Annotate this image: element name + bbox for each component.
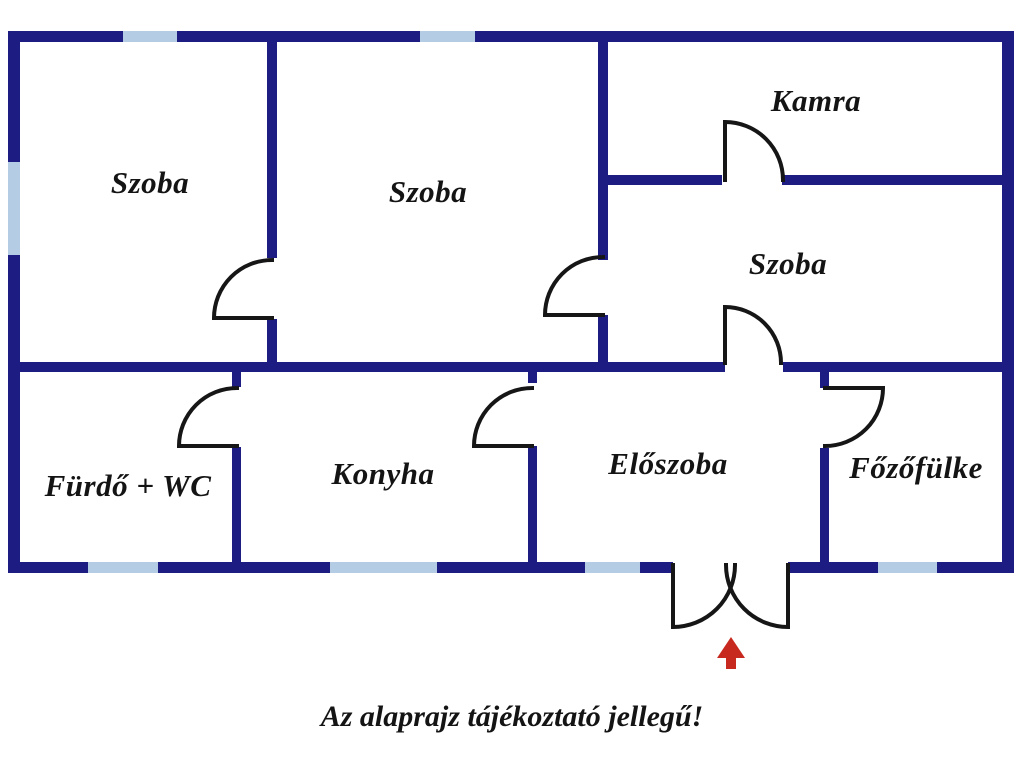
window-bottom-eloszoba bbox=[585, 562, 640, 573]
window-bottom-fozofulke bbox=[878, 562, 937, 573]
room-label-kamra: Kamra bbox=[771, 83, 861, 119]
door-kamra bbox=[725, 122, 783, 180]
room-label-eloszoba: Előszoba bbox=[608, 446, 727, 482]
room-label-szoba-3: Szoba bbox=[749, 246, 827, 282]
window-top-szoba2 bbox=[420, 31, 475, 42]
door-szoba3 bbox=[725, 307, 781, 363]
window-left-szoba1 bbox=[8, 162, 20, 255]
entrance-arrow-icon bbox=[717, 637, 745, 669]
room-label-furdo-wc: Fürdő + WC bbox=[45, 468, 212, 504]
caption: Az alaprajz tájékoztató jellegű! bbox=[321, 700, 704, 734]
room-label-fozofulke: Főzőfülke bbox=[849, 450, 983, 486]
door-szoba1 bbox=[214, 260, 272, 318]
window-bottom-konyha bbox=[330, 562, 437, 573]
window-top-szoba1 bbox=[123, 31, 177, 42]
room-label-szoba-1: Szoba bbox=[111, 165, 189, 201]
door-konyha bbox=[474, 388, 532, 446]
door-szoba2 bbox=[545, 257, 603, 315]
door-fozofulke bbox=[825, 388, 883, 446]
window-bottom-furdo bbox=[88, 562, 158, 573]
floor-plan-drawing bbox=[0, 0, 1024, 768]
floor-plan: Szoba Szoba Kamra Szoba Fürdő + WC Konyh… bbox=[0, 0, 1024, 768]
door-furdo bbox=[179, 388, 237, 446]
room-label-konyha: Konyha bbox=[332, 456, 435, 492]
room-label-szoba-2: Szoba bbox=[389, 174, 467, 210]
